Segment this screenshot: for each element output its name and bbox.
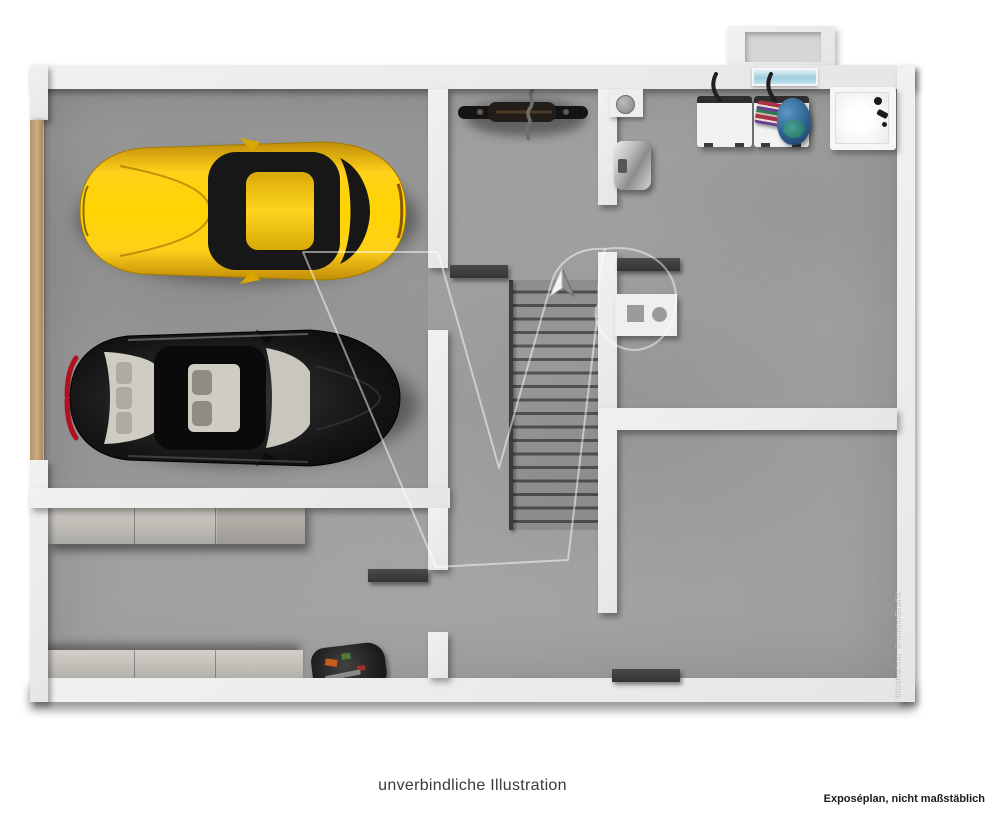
shower-tray	[830, 87, 896, 150]
toolbox-item	[341, 653, 351, 660]
wall-garage-divider-lower	[428, 330, 448, 490]
machine-foot	[761, 143, 770, 147]
wall-left-upper	[30, 65, 48, 120]
square-basin	[627, 305, 644, 322]
boiler-panel	[618, 159, 627, 173]
round-basin	[652, 307, 667, 322]
wall-bottom	[30, 678, 915, 702]
washing-machine-1	[697, 96, 752, 147]
shelf-end-segment	[217, 503, 305, 544]
floor-plan-illustration: Illustration ©immoGrafik	[0, 0, 1000, 826]
laundry-pile-teal	[783, 120, 805, 138]
stair-rail	[509, 280, 513, 530]
shelf-joint	[134, 503, 135, 544]
wall-utility-bottom	[598, 408, 897, 430]
door-storage-to-corridor	[368, 569, 428, 582]
toolbox-item	[325, 658, 338, 667]
faucet-fitting	[882, 122, 887, 127]
metal-boiler	[614, 141, 651, 190]
door-garage-to-hall	[450, 265, 508, 278]
door-corridor-to-right-room	[612, 669, 680, 682]
staircase	[512, 280, 598, 530]
machine-hoses	[700, 66, 820, 102]
door-hall-to-utility	[617, 258, 680, 271]
black-sedan	[58, 326, 412, 470]
machine-foot	[735, 143, 744, 147]
garage-door-strip	[30, 120, 43, 462]
wall-garage-bottom	[30, 488, 450, 508]
yellow-sports-car	[62, 136, 412, 286]
up-arrow-icon	[546, 266, 578, 300]
footnote: Exposéplan, nicht maßstäblich	[824, 793, 985, 805]
faucet-fitting	[874, 97, 882, 105]
floor-drain	[616, 95, 635, 114]
watermark-credit: Illustration ©immoGrafik	[893, 566, 909, 698]
shelf-joint	[215, 503, 216, 544]
wall-storage-divider-upper	[428, 508, 448, 570]
storage-shelf-top	[48, 503, 305, 544]
roof	[246, 172, 314, 250]
bicycle	[456, 86, 590, 144]
machine-foot	[704, 143, 713, 147]
caption: unverbindliche Illustration	[0, 777, 945, 795]
laundry-pile	[777, 98, 811, 145]
drain-stub	[609, 89, 643, 117]
light-shaft-opening	[745, 32, 821, 62]
wall-storage-divider-lower	[428, 632, 448, 678]
wall-hall-utility-main	[598, 252, 617, 420]
wall-garage-divider-upper	[428, 89, 448, 268]
basin-counter	[615, 294, 677, 336]
wall-lower-right-divider	[598, 430, 617, 613]
